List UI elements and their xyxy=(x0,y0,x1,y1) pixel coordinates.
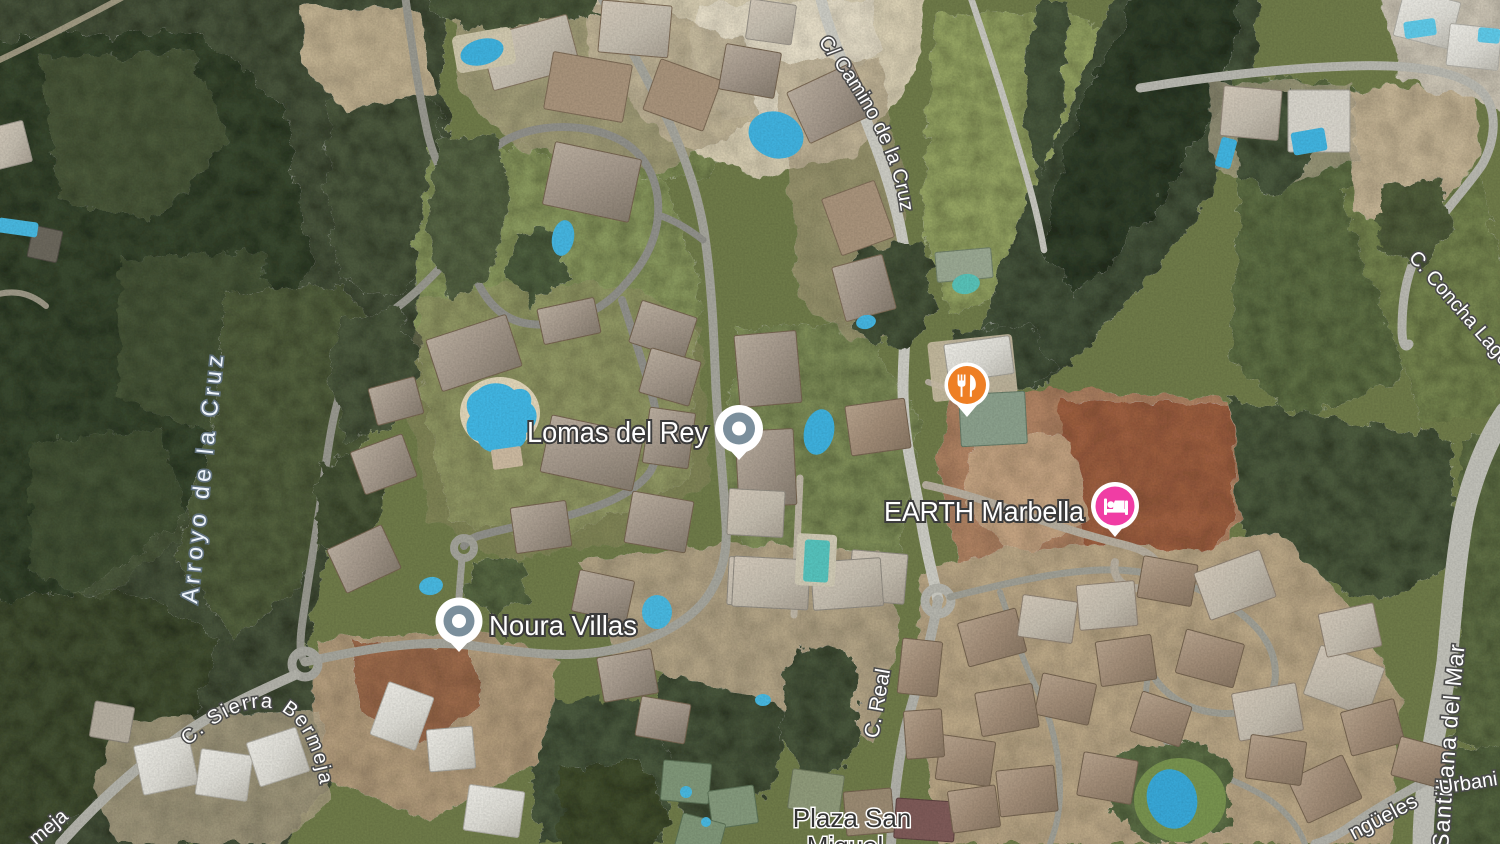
svg-text:Plaza San: Plaza San xyxy=(793,803,912,833)
svg-text:Lomas del Rey: Lomas del Rey xyxy=(527,417,708,449)
svg-text:Miguel: Miguel xyxy=(807,831,884,844)
svg-text:Noura Villas: Noura Villas xyxy=(489,610,637,641)
svg-text:EARTH Marbella: EARTH Marbella xyxy=(884,496,1084,527)
